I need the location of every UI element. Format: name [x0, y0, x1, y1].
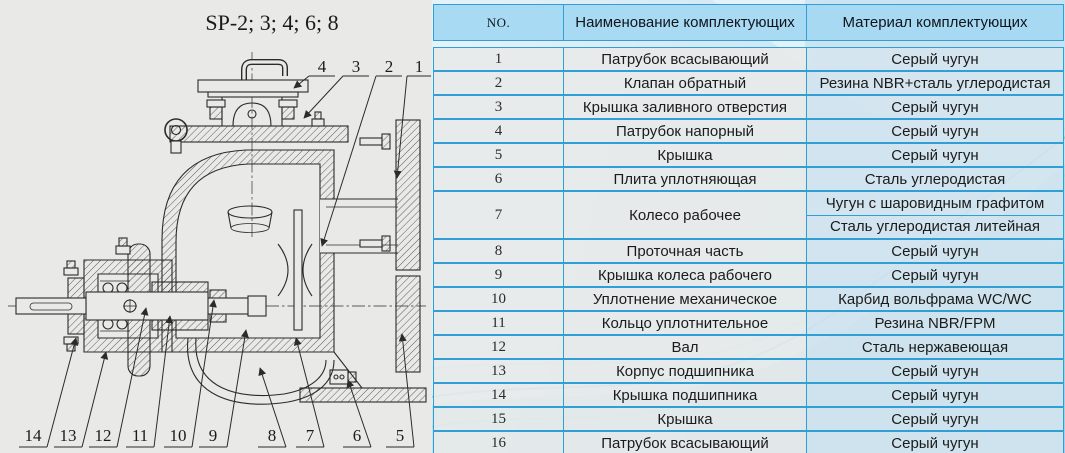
cell-name: Плита уплотняющая [563, 168, 806, 190]
impeller-detail [278, 210, 312, 330]
cell-material: Серый чугун [806, 432, 1063, 453]
cell-no: 5 [434, 144, 563, 166]
cell-material: Сталь нержавеющая [806, 336, 1063, 358]
cell-material: Чугун с шаровидным графитом [807, 192, 1063, 216]
cell-no: 13 [434, 360, 563, 382]
pump-cross-section-diagram: SP-2; 3; 4; 6; 8 [0, 0, 432, 453]
callout-number: 12 [95, 426, 112, 445]
cell-name: Патрубок напорный [563, 120, 806, 142]
parts-table: NO. Наименование комплектующих Материал … [433, 0, 1064, 453]
cell-no: 10 [434, 288, 563, 310]
page: SP-2; 3; 4; 6; 8 [0, 0, 1065, 453]
table-row: 9Крышка колеса рабочегоСерый чугун [433, 263, 1064, 287]
cell-name: Патрубок всасывающий [563, 48, 806, 70]
cell-name: Крышка колеса рабочего [563, 264, 806, 286]
casing-top-flange [170, 126, 348, 142]
table-row: 7Колесо рабочееЧугун с шаровидным графит… [433, 191, 1064, 239]
cell-no: 4 [434, 120, 563, 142]
cell-no: 16 [434, 432, 563, 453]
cell-material: Карбид вольфрама WC/WC [806, 288, 1063, 310]
cell-material: Серый чугун [806, 48, 1063, 70]
cell-no: 2 [434, 72, 563, 94]
callout-number: 13 [60, 426, 77, 445]
cell-name: Проточная часть [563, 240, 806, 262]
cell-name: Патрубок всасывающий [563, 432, 806, 453]
cell-material: Сталь углеродистая [806, 168, 1063, 190]
cell-material: Сталь углеродистая литейная [807, 216, 1063, 239]
top-right-bolt [312, 112, 324, 126]
table-row: 15КрышкаСерый чугун [433, 407, 1064, 431]
table-row: 16Патрубок всасывающийСерый чугун [433, 431, 1064, 453]
cell-name: Кольцо уплотнительное [563, 312, 806, 334]
table-row: 6Плита уплотняющаяСталь углеродистая [433, 167, 1064, 191]
table-body: 1Патрубок всасывающийСерый чугун2Клапан … [433, 47, 1064, 453]
callout-number: 8 [268, 426, 277, 445]
callout-number: 7 [306, 426, 315, 445]
cell-no: 14 [434, 384, 563, 406]
header-name: Наименование комплектующих [563, 5, 806, 40]
cell-no: 1 [434, 48, 563, 70]
table-header-row: NO. Наименование комплектующих Материал … [433, 4, 1064, 41]
table-row: 5КрышкаСерый чугун [433, 143, 1064, 167]
callout-number: 9 [209, 426, 218, 445]
cell-material: Серый чугун [806, 144, 1063, 166]
callout-number: 5 [396, 426, 405, 445]
diagram-panel: SP-2; 3; 4; 6; 8 [0, 0, 432, 453]
cell-material: Серый чугун [806, 120, 1063, 142]
cell-material: Серый чугун [806, 240, 1063, 262]
cell-name: Крышка [563, 408, 806, 430]
table-row: 8Проточная частьСерый чугун [433, 239, 1064, 263]
table-row: 12ВалСталь нержавеющая [433, 335, 1064, 359]
cell-no: 11 [434, 312, 563, 334]
callout-number: 1 [415, 57, 424, 76]
cell-material: Серый чугун [806, 96, 1063, 118]
callout-number: 2 [385, 57, 394, 76]
cell-material-stack: Чугун с шаровидным графитомСталь углерод… [806, 192, 1063, 238]
cell-name: Крышка подшипника [563, 384, 806, 406]
cell-no: 9 [434, 264, 563, 286]
cell-material: Резина NBR+сталь углеродистая [806, 72, 1063, 94]
table-row: 11Кольцо уплотнительноеРезина NBR/FPM [433, 311, 1064, 335]
cell-material: Серый чугун [806, 384, 1063, 406]
cell-material: Серый чугун [806, 360, 1063, 382]
diagram-title: SP-2; 3; 4; 6; 8 [205, 10, 338, 35]
cell-no: 3 [434, 96, 563, 118]
cell-no: 12 [434, 336, 563, 358]
callout-number: 10 [170, 426, 187, 445]
table-row: 4Патрубок напорныйСерый чугун [433, 119, 1064, 143]
callout-number: 3 [352, 57, 361, 76]
callout-number: 14 [25, 426, 43, 445]
cell-name: Крышка заливного отверстия [563, 96, 806, 118]
cell-name: Клапан обратный [563, 72, 806, 94]
table-row: 13Корпус подшипникаСерый чугун [433, 359, 1064, 383]
cell-name: Корпус подшипника [563, 360, 806, 382]
fill-port-cup-detail [228, 206, 272, 233]
table-row: 10Уплотнение механическоеКарбид вольфрам… [433, 287, 1064, 311]
cell-name: Колесо рабочее [563, 192, 806, 238]
header-material: Материал комплектующих [806, 5, 1063, 40]
shaft-end-detail [16, 292, 208, 320]
cell-no: 15 [434, 408, 563, 430]
cell-material: Резина NBR/FPM [806, 312, 1063, 334]
cell-no: 6 [434, 168, 563, 190]
discharge-flange-detail [198, 80, 308, 126]
cell-name: Вал [563, 336, 806, 358]
cell-no: 7 [434, 192, 563, 238]
callout-number: 6 [353, 426, 362, 445]
callout-number: 4 [318, 57, 327, 76]
parts-panel: NO. Наименование комплектующих Материал … [432, 0, 1065, 453]
table-row: 1Патрубок всасывающийСерый чугун [433, 47, 1064, 71]
suction-flange-detail [360, 120, 420, 270]
cell-material: Серый чугун [806, 408, 1063, 430]
table-row: 3Крышка заливного отверстияСерый чугун [433, 95, 1064, 119]
header-no: NO. [434, 5, 563, 40]
cell-name: Крышка [563, 144, 806, 166]
cell-no: 8 [434, 240, 563, 262]
shaft-detail [206, 296, 266, 316]
cell-material: Серый чугун [806, 264, 1063, 286]
table-row: 14Крышка подшипникаСерый чугун [433, 383, 1064, 407]
table-row: 2Клапан обратныйРезина NBR+сталь углерод… [433, 71, 1064, 95]
callout-number: 11 [132, 426, 148, 445]
cell-name: Уплотнение механическое [563, 288, 806, 310]
